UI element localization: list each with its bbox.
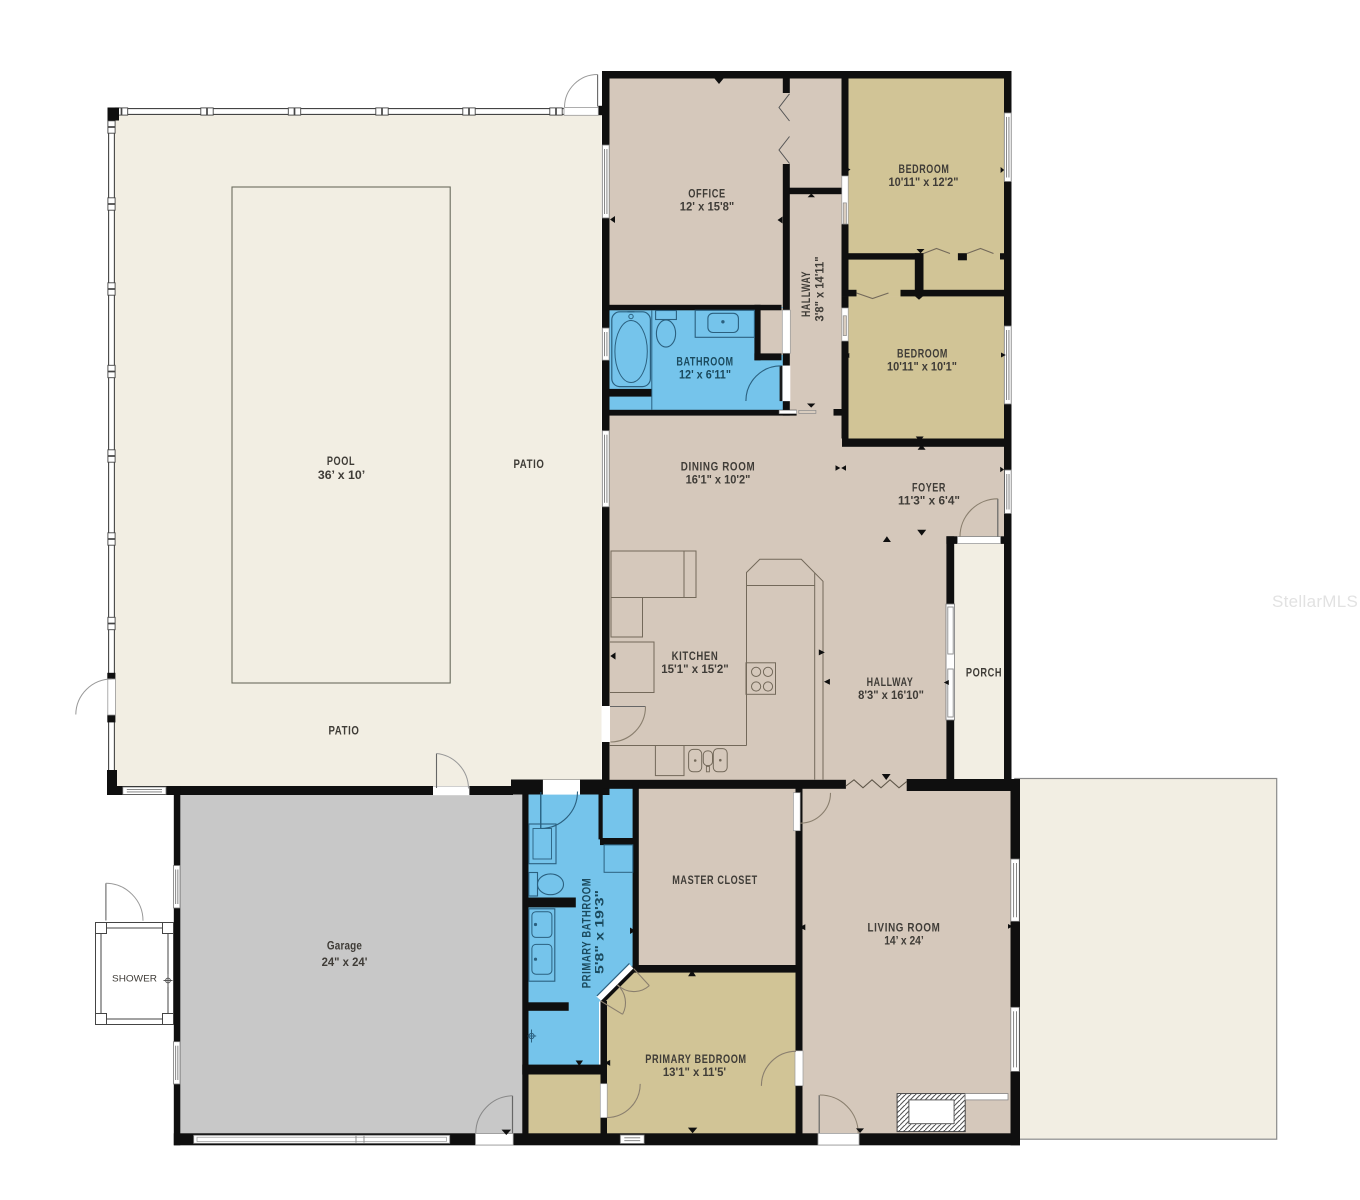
svg-text:LIVING ROOM: LIVING ROOM bbox=[868, 921, 941, 935]
svg-text:PRIMARY BATHROOM: PRIMARY BATHROOM bbox=[580, 878, 594, 989]
svg-text:OFFICE: OFFICE bbox=[688, 186, 726, 200]
svg-text:BATHROOM: BATHROOM bbox=[676, 354, 733, 368]
svg-text:FOYER: FOYER bbox=[912, 480, 946, 494]
svg-text:StellarMLS: StellarMLS bbox=[1272, 592, 1358, 611]
svg-text:14’ x 24’: 14’ x 24’ bbox=[884, 934, 924, 948]
svg-text:HALLWAY: HALLWAY bbox=[867, 675, 914, 689]
svg-text:BEDROOM: BEDROOM bbox=[897, 346, 948, 360]
svg-text:PRIMARY BEDROOM: PRIMARY BEDROOM bbox=[645, 1052, 746, 1066]
svg-text:24" x 24': 24" x 24' bbox=[322, 955, 368, 969]
svg-text:15'1" x 15'2": 15'1" x 15'2" bbox=[661, 662, 729, 676]
svg-text:13'1" x 11'5': 13'1" x 11'5' bbox=[663, 1065, 726, 1079]
svg-text:3'8" x 14'11": 3'8" x 14'11" bbox=[813, 256, 827, 321]
svg-text:12' x 6'11": 12' x 6'11" bbox=[679, 367, 731, 381]
svg-text:8'3" x 16'10": 8'3" x 16'10" bbox=[858, 688, 924, 702]
svg-text:Garage: Garage bbox=[327, 938, 362, 952]
svg-text:5'8" x 19'3": 5'8" x 19'3" bbox=[593, 890, 607, 974]
svg-text:MASTER CLOSET: MASTER CLOSET bbox=[672, 873, 758, 887]
svg-text:36’ x 10’: 36’ x 10’ bbox=[318, 468, 365, 482]
svg-text:SHOWER: SHOWER bbox=[112, 974, 157, 985]
svg-text:PATIO: PATIO bbox=[328, 724, 359, 738]
svg-text:16'1" x 10'2": 16'1" x 10'2" bbox=[686, 473, 751, 487]
svg-text:PATIO: PATIO bbox=[513, 457, 544, 471]
svg-text:10'11" x 10'1": 10'11" x 10'1" bbox=[887, 359, 957, 373]
svg-text:11'3" x 6'4": 11'3" x 6'4" bbox=[898, 493, 960, 507]
svg-text:HALLWAY: HALLWAY bbox=[799, 271, 813, 317]
svg-text:POOL: POOL bbox=[327, 454, 355, 468]
svg-text:PORCH: PORCH bbox=[966, 666, 1002, 680]
svg-text:DINING ROOM: DINING ROOM bbox=[681, 460, 756, 474]
svg-text:KITCHEN: KITCHEN bbox=[672, 649, 719, 663]
svg-text:10'11" x 12'2": 10'11" x 12'2" bbox=[889, 175, 959, 189]
svg-text:BEDROOM: BEDROOM bbox=[899, 162, 950, 176]
svg-text:12' x 15'8": 12' x 15'8" bbox=[680, 199, 735, 213]
